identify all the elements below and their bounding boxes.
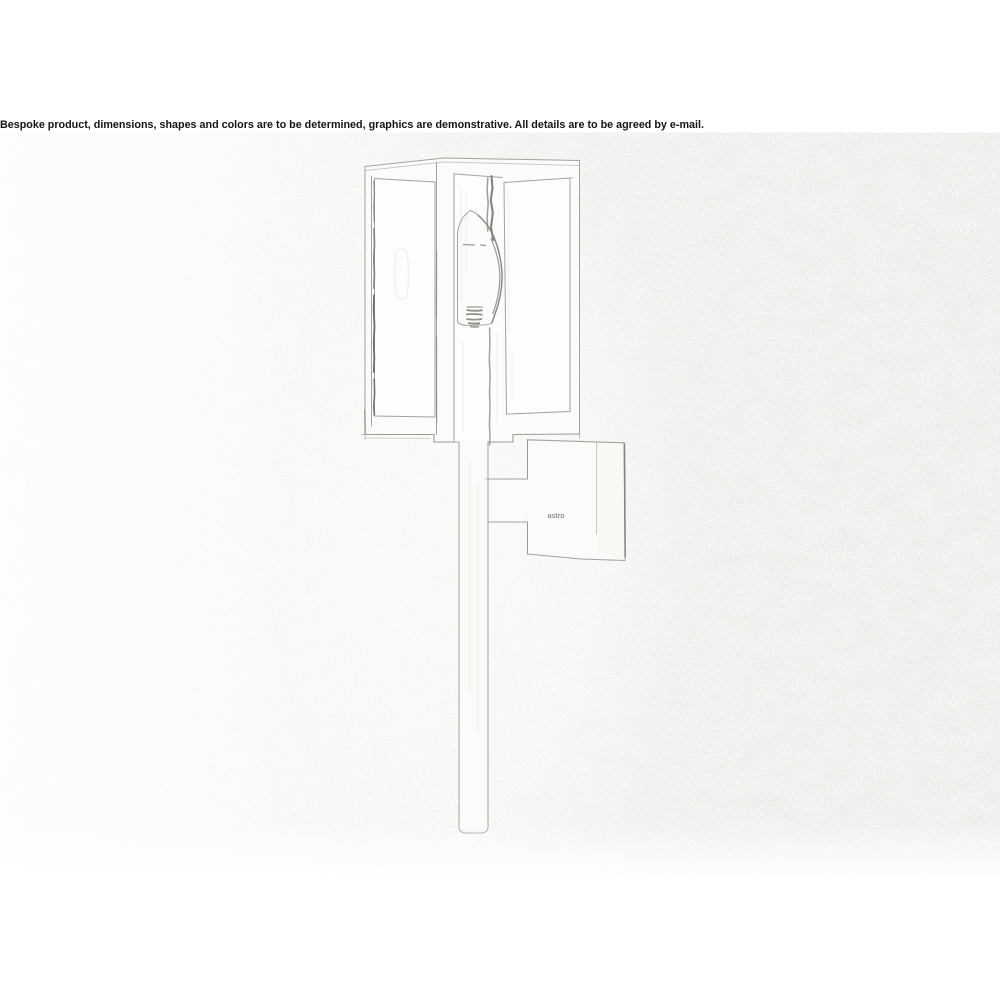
svg-text:astro: astro — [548, 511, 566, 520]
